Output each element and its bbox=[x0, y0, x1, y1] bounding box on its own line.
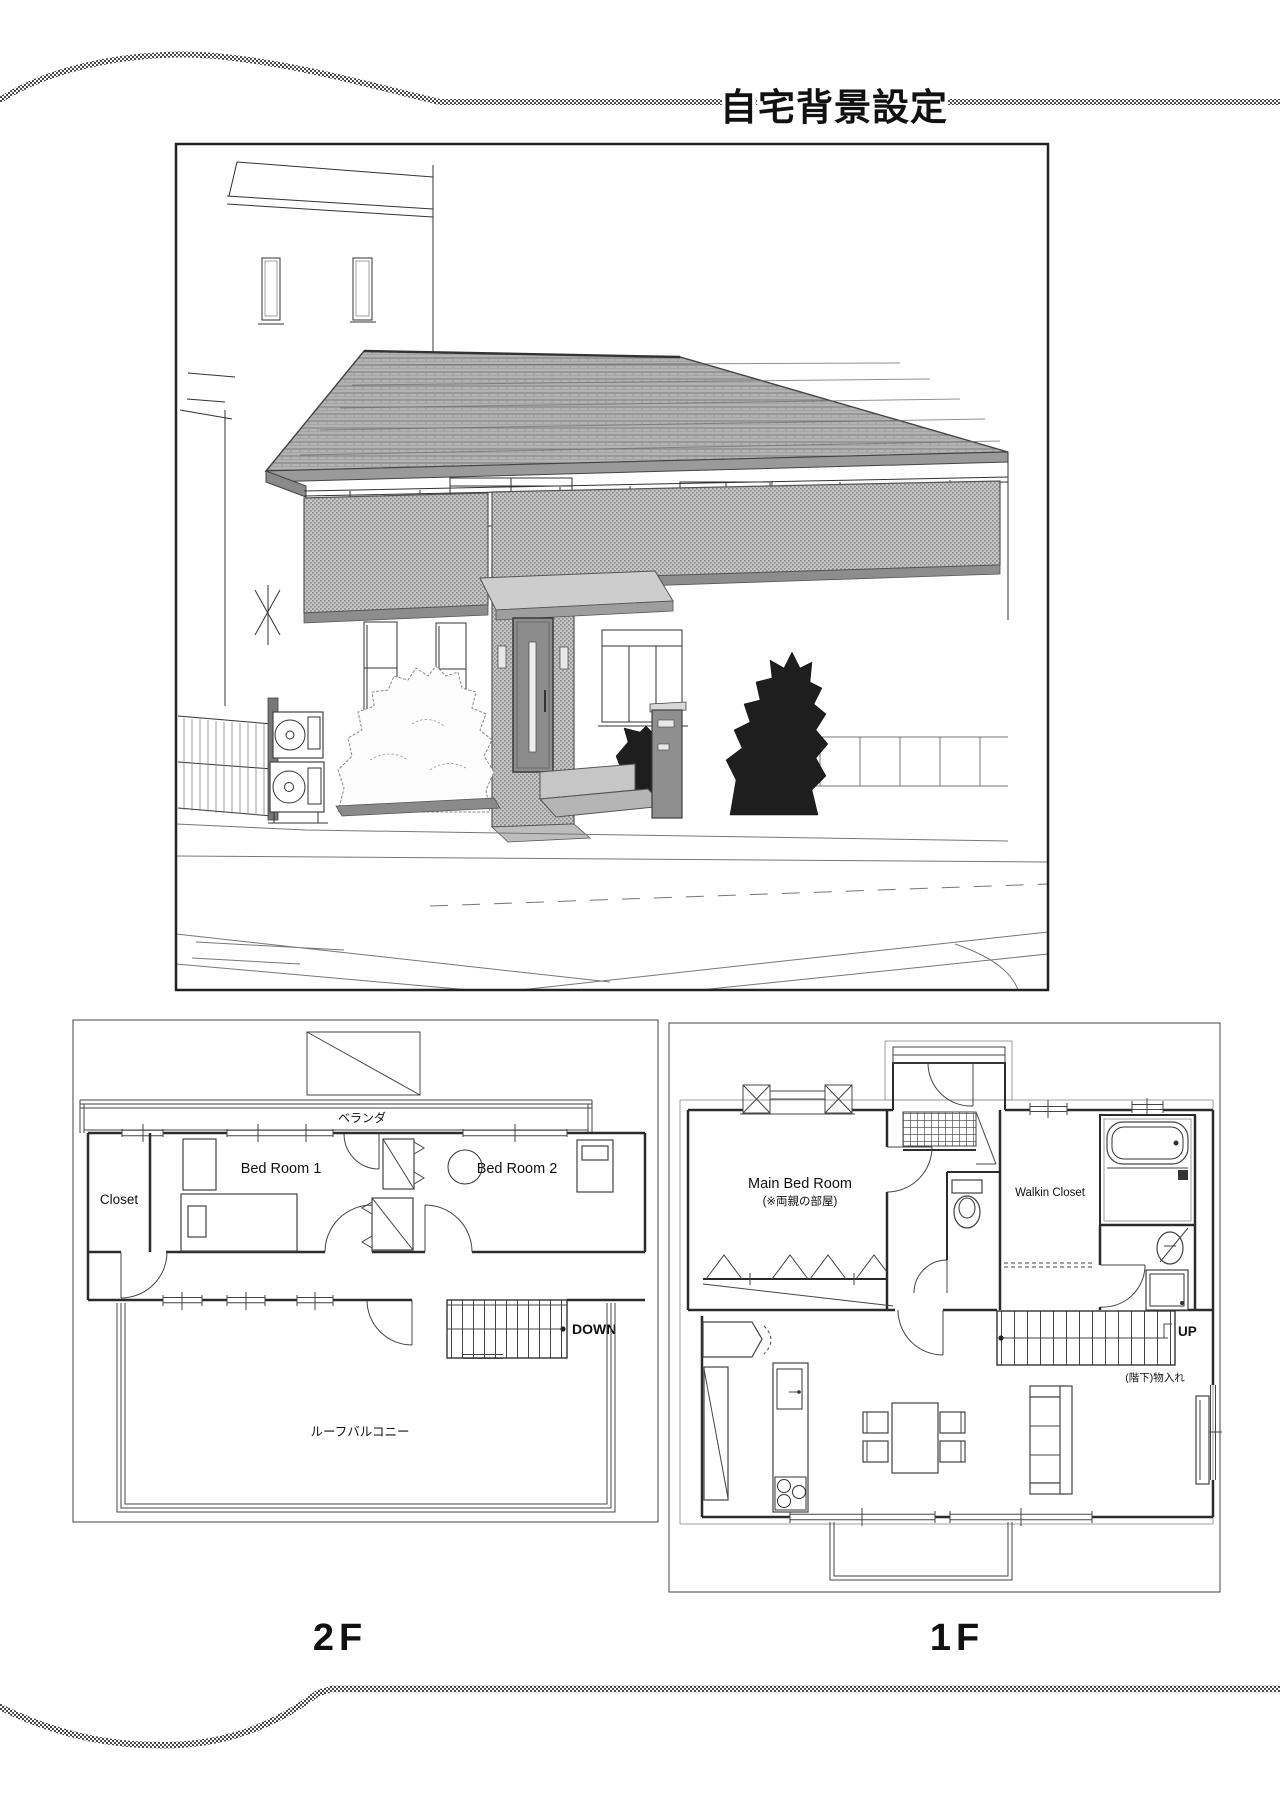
bathroom bbox=[1100, 1115, 1195, 1225]
washbasin bbox=[1157, 1232, 1183, 1264]
floor-plan-2f: ベランダ Closet Bed Room 1 Bed Room 2 bbox=[73, 1020, 658, 1659]
stairs-2f bbox=[447, 1300, 567, 1359]
understair-storage-label: (階下)物入れ bbox=[1125, 1371, 1185, 1384]
porch-lamp-right bbox=[560, 647, 568, 669]
entry-hall bbox=[887, 1112, 996, 1355]
stair-bulkhead bbox=[307, 1032, 420, 1095]
veranda-label: ベランダ bbox=[338, 1110, 386, 1125]
bottom-border-ribbon bbox=[0, 1689, 1280, 1745]
pantry-cabinet bbox=[703, 1322, 771, 1357]
main-bedroom-note: (※両親の部屋) bbox=[763, 1194, 838, 1208]
toilet-room bbox=[947, 1172, 1000, 1260]
settei-page: 自宅背景設定 bbox=[0, 0, 1280, 1808]
plan-1f-outline bbox=[669, 1023, 1220, 1592]
kitchen-counter bbox=[773, 1363, 808, 1512]
walkin-closet-label: Walkin Closet bbox=[1015, 1187, 1086, 1199]
floor-1f-label: 1F bbox=[930, 1617, 984, 1659]
hall-closets bbox=[362, 1139, 424, 1250]
ac-units bbox=[268, 712, 328, 823]
tv-board bbox=[1196, 1396, 1209, 1484]
mbr-window-shutters bbox=[740, 1085, 855, 1114]
floor-2f-label: 2F bbox=[313, 1617, 367, 1659]
stairs-1f bbox=[997, 1311, 1175, 1365]
bed-bedroom2 bbox=[577, 1140, 613, 1192]
closet-label: Closet bbox=[100, 1192, 139, 1207]
bed-bedroom1 bbox=[181, 1194, 297, 1251]
walkin-closet: Walkin Closet bbox=[1000, 1110, 1093, 1310]
top-border-ribbon bbox=[0, 55, 1280, 104]
mbr-closet bbox=[703, 1255, 893, 1306]
page-title: 自宅背景設定 bbox=[720, 86, 948, 128]
bedroom1-label: Bed Room 1 bbox=[241, 1161, 322, 1177]
floor-plan-1f: Main Bed Room (※両親の部屋) Wa bbox=[669, 1023, 1222, 1659]
porch-lamp-left bbox=[498, 646, 506, 668]
desk-bedroom1 bbox=[183, 1139, 216, 1190]
sofa bbox=[1030, 1386, 1072, 1494]
dining-set bbox=[863, 1403, 965, 1473]
refrigerator bbox=[704, 1367, 728, 1500]
entrance-porch bbox=[893, 1047, 1005, 1110]
main-bedroom-label: Main Bed Room bbox=[748, 1176, 852, 1192]
roof-balcony-label: ルーフバルコニー bbox=[310, 1425, 409, 1439]
bedroom2-label: Bed Room 2 bbox=[477, 1161, 558, 1177]
front-door bbox=[513, 618, 553, 772]
up-label: UP bbox=[1178, 1324, 1197, 1339]
entrance-canopy bbox=[480, 571, 673, 620]
terrace bbox=[830, 1522, 1012, 1580]
mailbox-post bbox=[650, 702, 686, 818]
house-illustration bbox=[176, 144, 1048, 990]
down-label: DOWN bbox=[572, 1321, 616, 1337]
